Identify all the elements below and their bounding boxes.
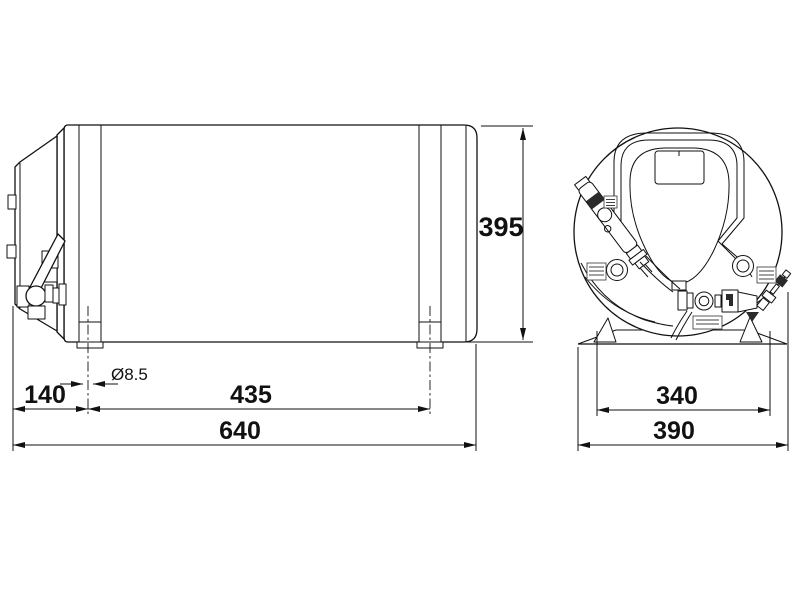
port-right	[733, 256, 754, 277]
dim-hole-diameter-label: Ø8.5	[111, 365, 148, 384]
valve-nut-3	[59, 284, 66, 305]
micro-label-port-right	[757, 267, 776, 283]
port-left	[607, 260, 628, 281]
end-view: 340 390	[572, 128, 793, 451]
strap-foot-left	[79, 322, 101, 342]
tank-body	[64, 125, 477, 342]
cap-tab-upper	[8, 195, 16, 209]
dim-overall-width-label: 390	[653, 417, 695, 445]
micro-label-port-left	[587, 263, 606, 280]
dim-offset-label: 140	[24, 381, 66, 409]
dim-foot-spacing-label: 435	[230, 381, 272, 409]
valve-drain-spout	[28, 306, 45, 319]
technical-drawing: 395 Ø8.5 140 435 640	[0, 0, 800, 600]
valve-nut-1	[45, 285, 53, 302]
micro-label-inlet-valve	[693, 316, 722, 329]
micro-label-relief-valve	[604, 196, 617, 208]
drawing-canvas: 395 Ø8.5 140 435 640	[0, 0, 800, 600]
ball-valve-body	[26, 286, 46, 306]
side-view: 395 Ø8.5 140 435 640	[7, 125, 533, 451]
dim-overall-length-label: 640	[219, 417, 261, 445]
dim-base-hole-spacing-label: 340	[656, 382, 698, 410]
dim-height-label: 395	[478, 212, 523, 242]
cap-tab-lower	[7, 245, 16, 258]
